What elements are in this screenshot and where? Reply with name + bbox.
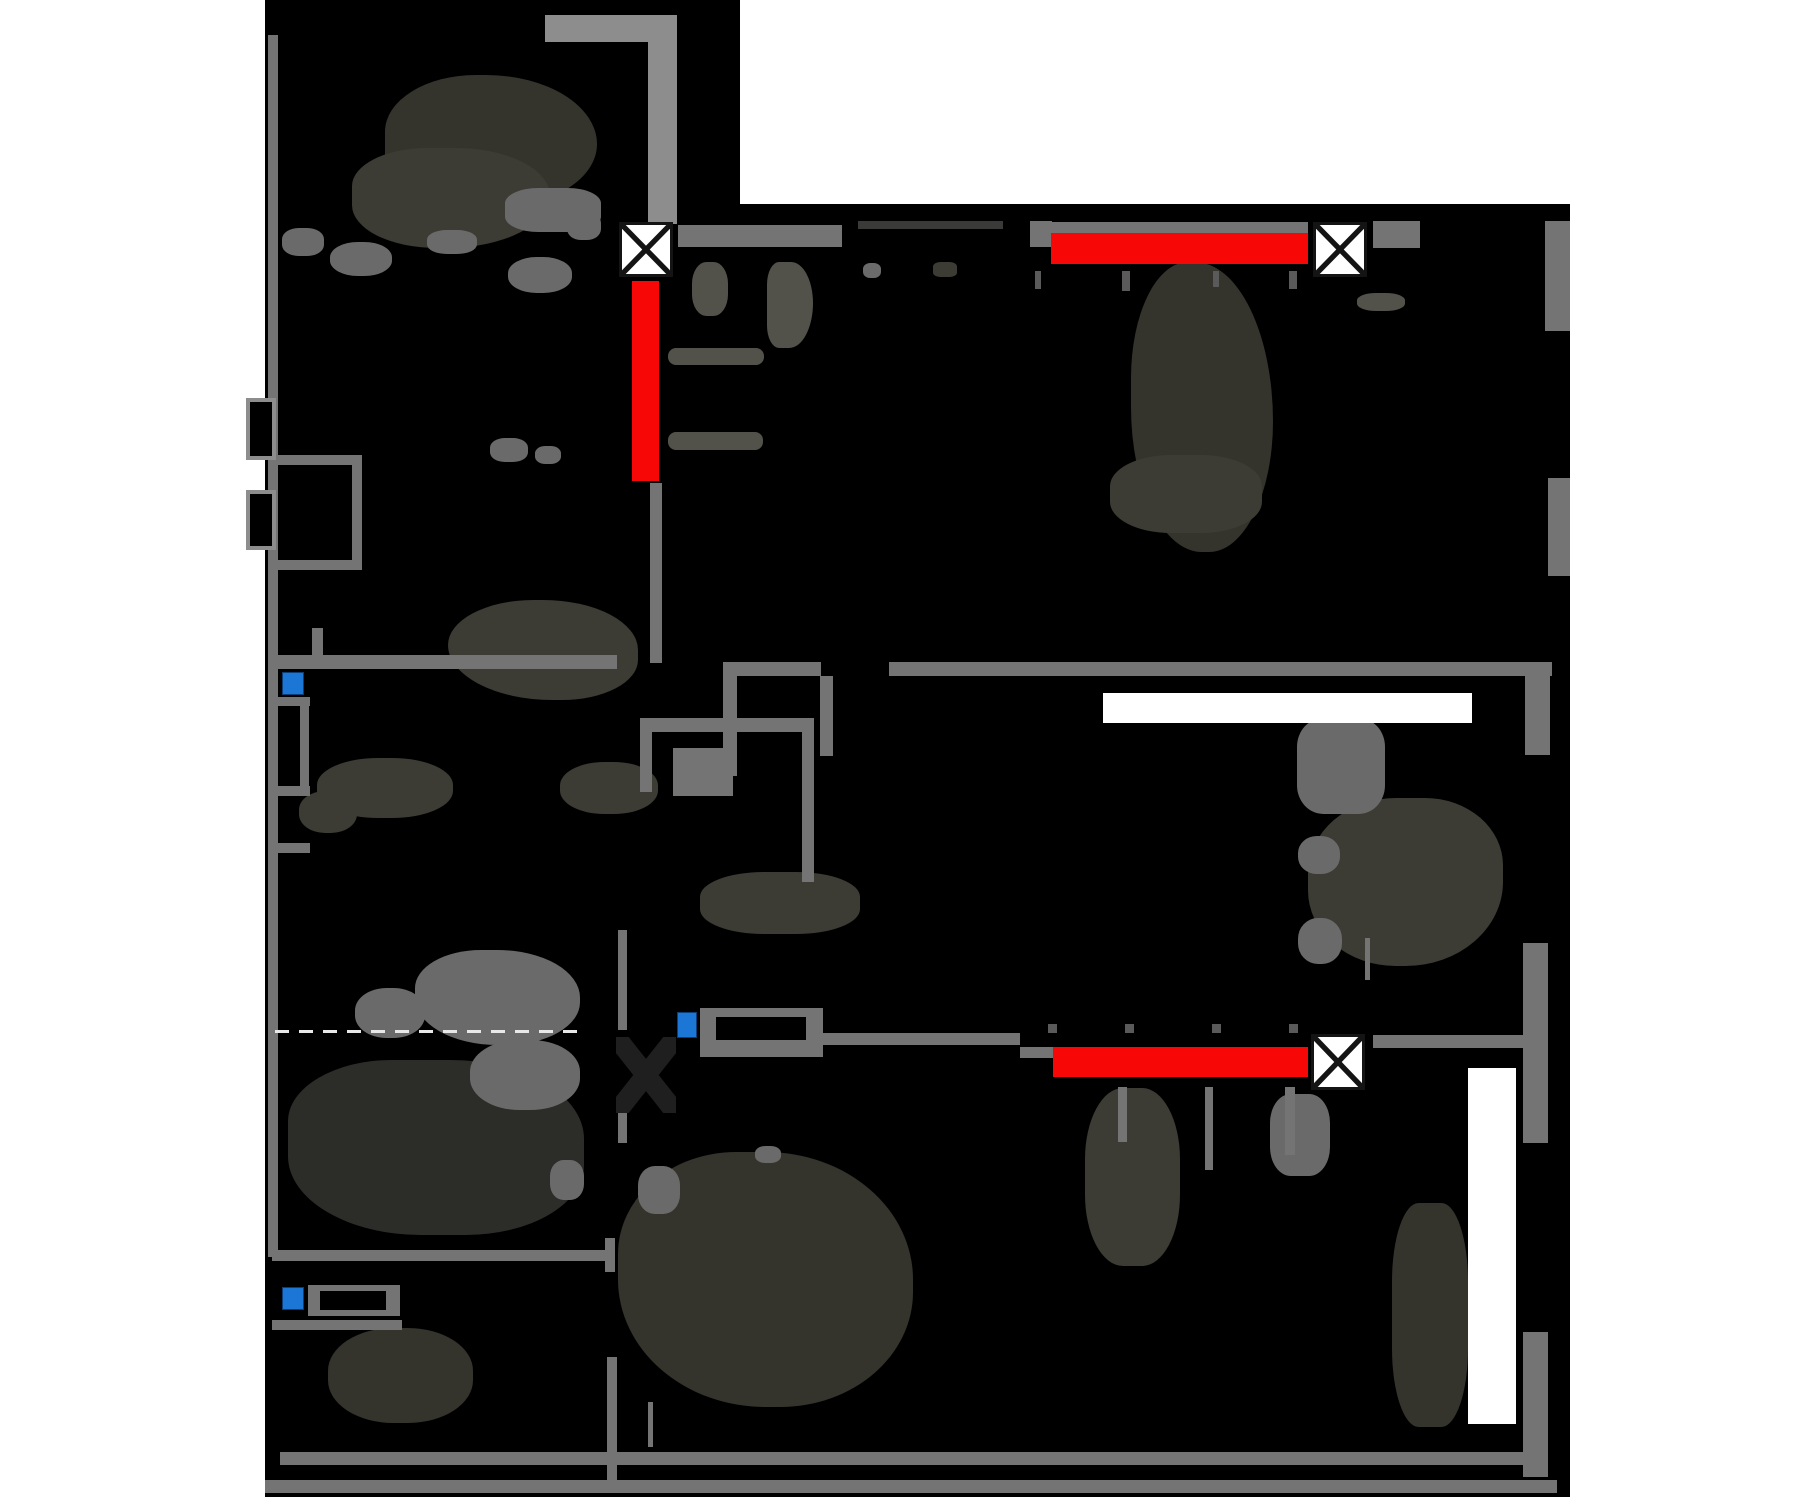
degraded-label-blob [299, 791, 357, 833]
degraded-label-blob [508, 257, 572, 293]
degraded-label-blob [427, 230, 477, 254]
wall-segment [858, 221, 1003, 229]
wall-segment [648, 1402, 653, 1447]
degraded-label-blob [328, 1328, 473, 1423]
wall-segment [1205, 1087, 1213, 1170]
plumbing-riser-marker [677, 1012, 697, 1038]
wall-segment [1365, 938, 1370, 980]
wall-segment [312, 628, 323, 658]
wall-tick [1048, 1024, 1057, 1033]
wall-segment [1523, 1332, 1548, 1477]
degraded-label-blob [330, 242, 392, 276]
wall-tick [1213, 271, 1219, 287]
plumbing-riser-marker [282, 1287, 304, 1310]
degraded-label-blob [638, 1166, 680, 1214]
wall-segment [673, 748, 733, 796]
duct-box [246, 490, 276, 550]
wall-segment [272, 786, 310, 796]
wall-segment [605, 1238, 615, 1272]
degraded-label-blob [1392, 1203, 1468, 1427]
wall-segment [272, 1320, 402, 1330]
wall-segment [648, 15, 677, 224]
wall-tick [1125, 1024, 1134, 1033]
wall-segment [1523, 943, 1548, 1143]
wall-segment [272, 843, 310, 853]
highlighted-wall-red [632, 281, 659, 481]
wall-segment [820, 676, 833, 756]
wall-tick [1035, 271, 1041, 289]
wall-segment [265, 1480, 1557, 1493]
degraded-label-blob [1085, 1088, 1180, 1266]
wall-segment [1373, 221, 1420, 248]
wall-segment [1545, 221, 1570, 331]
degraded-label-blob [1270, 1094, 1330, 1176]
wall-segment [618, 930, 627, 1030]
dimension-dash-line [275, 1030, 587, 1033]
wall-segment [268, 35, 278, 1257]
wall-segment [678, 225, 842, 247]
wall-tick [1289, 1024, 1298, 1033]
degraded-label-blob [1110, 455, 1262, 533]
highlighted-wall-red [1051, 233, 1308, 264]
degraded-label-blob [1298, 836, 1340, 874]
degraded-label-blob [470, 1040, 580, 1110]
highlighted-wall-white [1103, 693, 1472, 723]
fixture-outline [700, 1008, 823, 1057]
wall-segment [1035, 222, 1308, 233]
wall-segment [1525, 662, 1550, 755]
wall-segment [1020, 1047, 1053, 1058]
wall-tick [1289, 271, 1297, 289]
degraded-label-blob [282, 228, 324, 256]
wall-segment [280, 1452, 1523, 1465]
degraded-label-blob [933, 262, 957, 277]
wall-segment [300, 706, 309, 796]
vent-shaft-icon [1311, 1034, 1365, 1090]
wall-segment [640, 718, 814, 732]
door-swing-cross-icon [616, 1037, 676, 1113]
wall-segment [823, 1033, 1020, 1045]
wall-segment [1285, 1087, 1295, 1155]
highlighted-wall-white [1468, 1068, 1516, 1424]
degraded-label-blob [567, 212, 601, 240]
wall-segment [607, 1357, 617, 1490]
degraded-label-blob [863, 263, 881, 278]
degraded-label-blob [668, 348, 764, 365]
wall-segment [889, 662, 1552, 676]
wall-segment [272, 655, 617, 669]
fixture-inner [320, 1291, 386, 1310]
fixture-outline [308, 1285, 400, 1316]
wall-tick [1212, 1024, 1221, 1033]
wall-segment [272, 560, 360, 570]
wall-segment [1548, 478, 1570, 576]
degraded-label-blob [700, 872, 860, 934]
vent-shaft-icon [1313, 222, 1367, 277]
wall-tick [1122, 271, 1130, 291]
wall-segment [650, 483, 662, 663]
degraded-label-blob [1298, 918, 1342, 964]
fixture-inner [716, 1017, 806, 1040]
wall-segment [802, 732, 814, 882]
degraded-label-blob [550, 1160, 584, 1200]
degraded-label-blob [1357, 293, 1405, 311]
degraded-label-blob [692, 262, 728, 316]
degraded-label-blob [755, 1146, 781, 1163]
wall-segment [352, 455, 362, 570]
degraded-label-blob [1297, 718, 1385, 814]
wall-segment [272, 455, 360, 465]
wall-segment [270, 697, 310, 706]
highlighted-wall-red [1053, 1047, 1308, 1077]
degraded-label-blob [535, 446, 561, 464]
degraded-label-blob [490, 438, 528, 462]
vent-shaft-icon [619, 222, 673, 277]
degraded-label-blob [668, 432, 763, 450]
duct-box [246, 398, 276, 460]
wall-segment [723, 662, 821, 676]
wall-segment [640, 732, 652, 792]
plumbing-riser-marker [282, 672, 304, 695]
wall-segment [272, 1250, 607, 1261]
wall-segment [1118, 1087, 1127, 1142]
floor-plan-canvas: 3-комн. [0, 0, 1800, 1500]
wall-segment [1373, 1035, 1523, 1048]
